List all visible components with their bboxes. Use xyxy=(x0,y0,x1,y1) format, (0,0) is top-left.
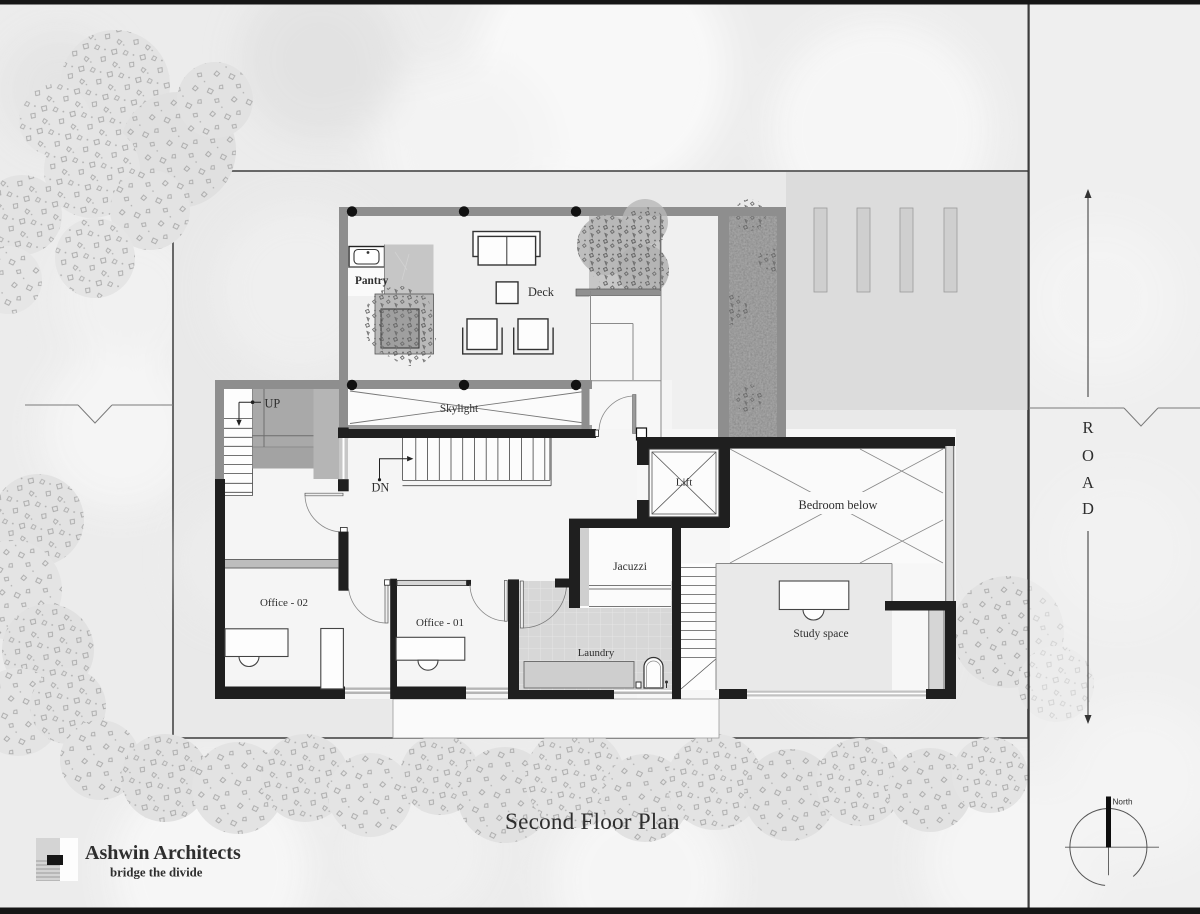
svg-text:UP: UP xyxy=(265,397,281,411)
svg-text:DN: DN xyxy=(372,481,390,495)
svg-text:Bedroom below: Bedroom below xyxy=(799,498,878,512)
svg-text:Study space: Study space xyxy=(793,628,848,640)
svg-text:North: North xyxy=(1113,798,1133,807)
svg-text:Lift: Lift xyxy=(676,477,693,489)
svg-text:Jacuzzi: Jacuzzi xyxy=(613,561,647,573)
svg-text:O: O xyxy=(1082,446,1094,465)
svg-text:Laundry: Laundry xyxy=(578,647,615,659)
svg-text:D: D xyxy=(1082,499,1094,518)
svg-text:bridge the divide: bridge the divide xyxy=(110,866,203,880)
svg-text:Office - 02: Office - 02 xyxy=(260,597,308,609)
svg-text:Ashwin Architects: Ashwin Architects xyxy=(85,842,241,864)
svg-text:Pantry: Pantry xyxy=(355,275,389,287)
svg-text:Deck: Deck xyxy=(528,285,555,299)
svg-text:Skylight: Skylight xyxy=(440,403,479,415)
svg-text:R: R xyxy=(1082,418,1093,437)
svg-text:A: A xyxy=(1082,473,1094,492)
svg-text:Office - 01: Office - 01 xyxy=(416,617,464,629)
svg-text:Second Floor Plan: Second Floor Plan xyxy=(505,809,680,835)
